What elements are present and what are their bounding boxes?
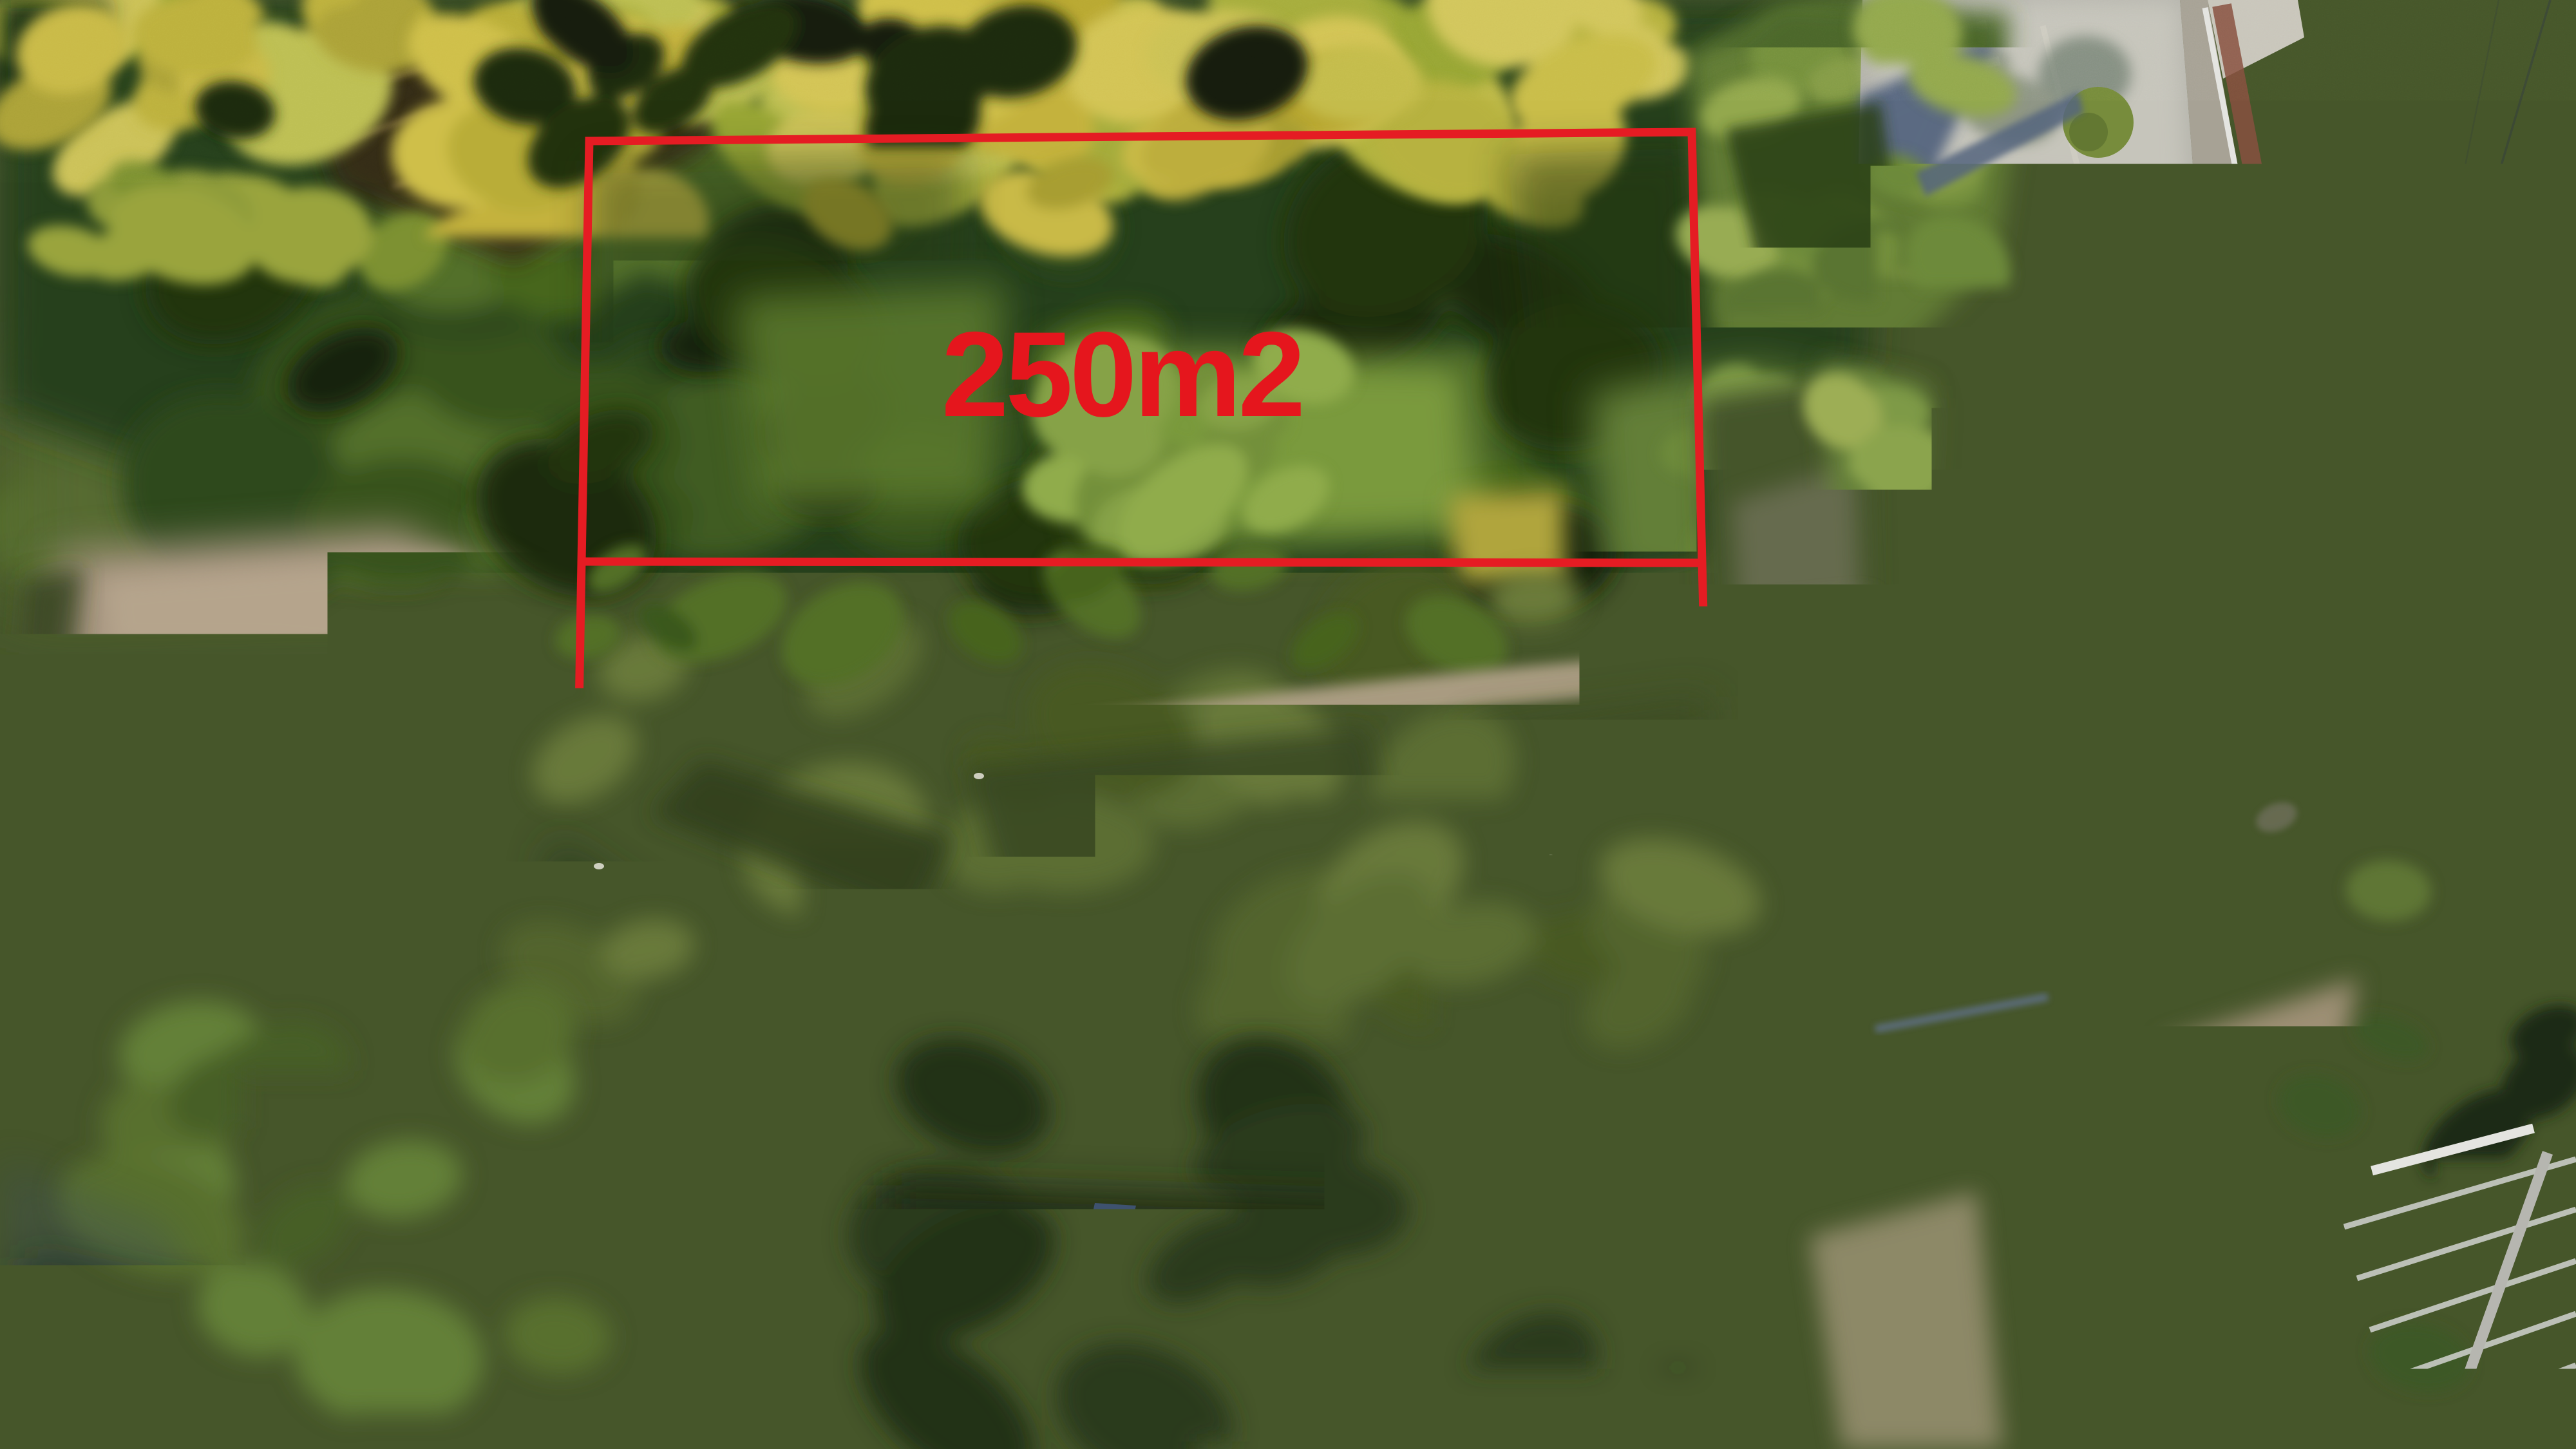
svg-text:250m2: 250m2: [945, 749, 1306, 884]
svg-text:250m2: 250m2: [942, 307, 1302, 442]
